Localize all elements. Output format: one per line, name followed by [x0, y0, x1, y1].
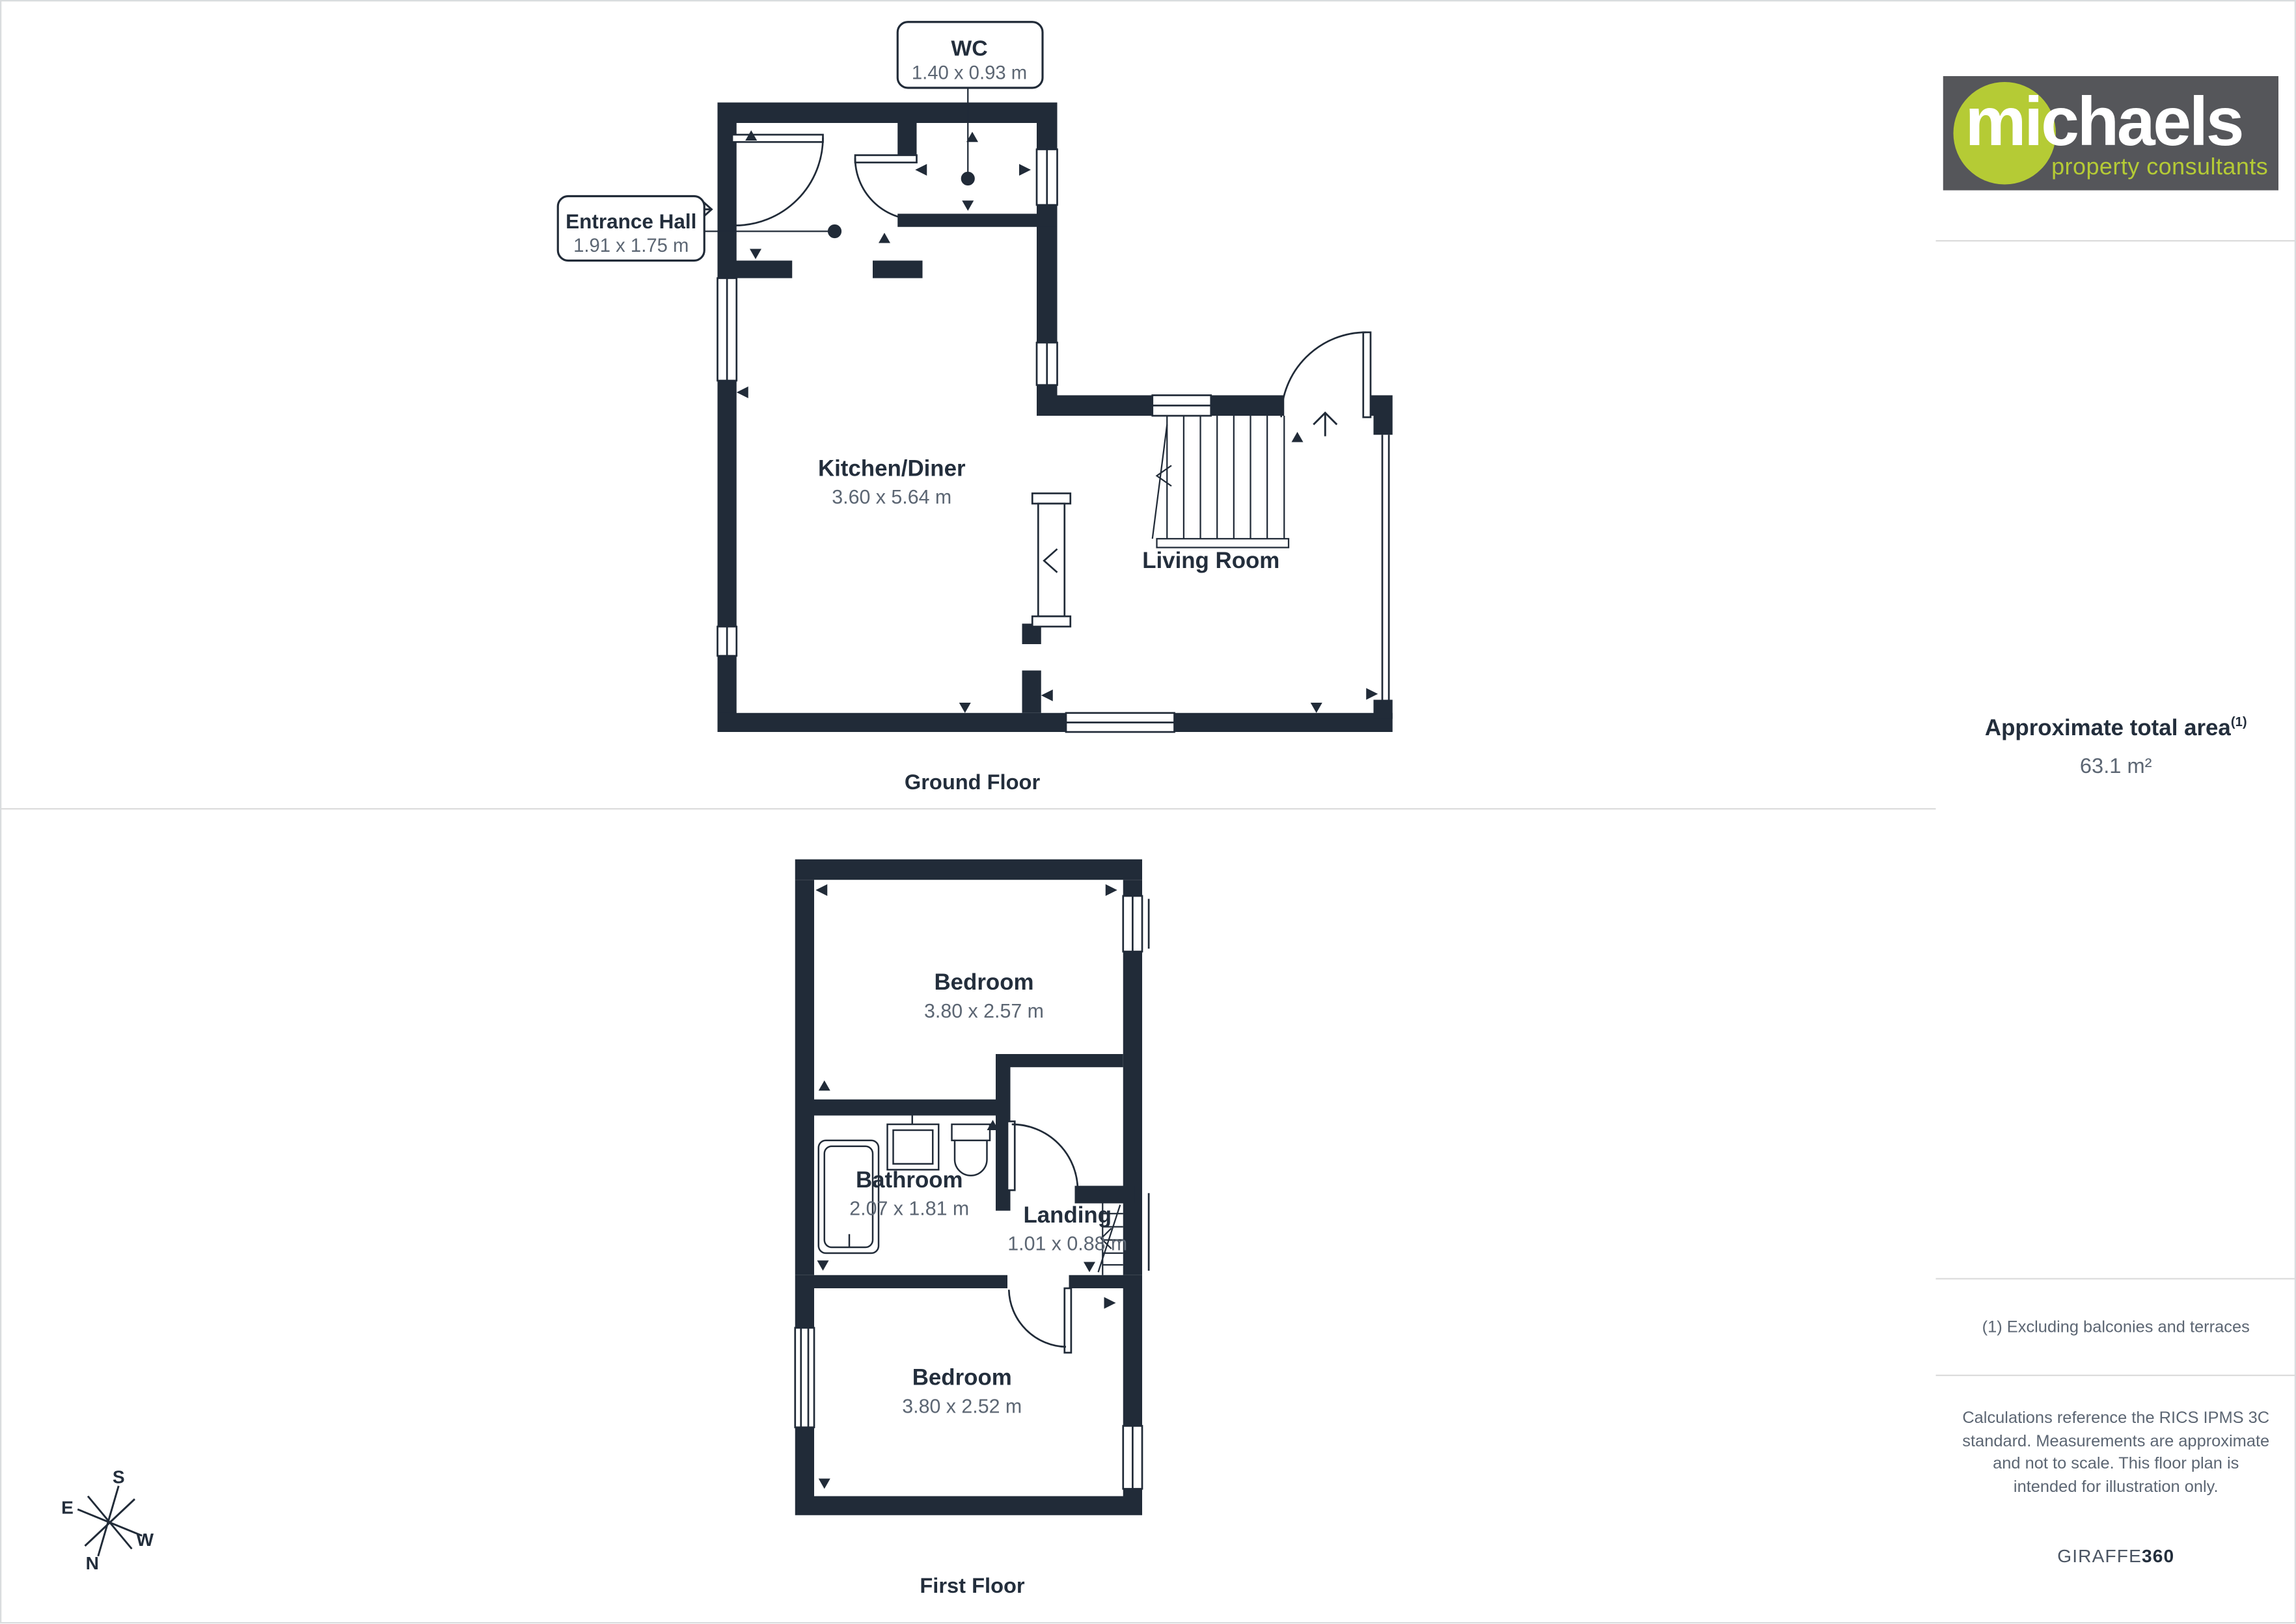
wc-room-name: WC — [951, 36, 987, 61]
disclaimer-text: Calculations reference the RICS IPMS 3C … — [1961, 1409, 2271, 1500]
total-area-block: Approximate total area(1) 63.1 m² — [1936, 714, 2296, 779]
compass-icon: S E W N — [61, 1467, 154, 1573]
total-area-value: 63.1 m² — [1936, 755, 2296, 779]
ground-floor-stairs — [1153, 416, 1289, 548]
ground-floor-plan: WC 1.40 x 0.93 m Entrance Hall 1.91 x 1.… — [558, 22, 1393, 794]
bedroom-front-name: Bedroom — [934, 969, 1033, 995]
sidebar-divider-footnote-top — [1936, 1278, 2296, 1279]
compass-s: S — [113, 1467, 125, 1487]
bathroom-name: Bathroom — [856, 1167, 963, 1193]
kitchen-living-divider — [1032, 493, 1071, 627]
first-floor-title: First Floor — [920, 1573, 1025, 1597]
first-floor-plan: Bedroom 3.80 x 2.57 m Bathroom 2.07 x 1.… — [795, 859, 1149, 1597]
bedroom-back-door — [1009, 1288, 1071, 1353]
logo-tagline: property consultants — [2051, 156, 2268, 182]
compass-n: N — [86, 1553, 99, 1573]
giraffe360-credit: GIRAFFE360 — [1936, 1546, 2296, 1567]
bathtub-icon — [819, 1141, 879, 1253]
agency-logo: michaels property consultants — [1943, 76, 2278, 191]
sidebar: michaels property consultants Approximat… — [1936, 0, 2296, 1623]
total-area-title: Approximate total area(1) — [1936, 714, 2296, 742]
ground-floor-title: Ground Floor — [905, 770, 1041, 794]
logo-brand-text: michaels — [1965, 87, 2243, 156]
living-room-name: Living Room — [1142, 548, 1279, 573]
sidebar-divider-footnote-bottom — [1936, 1375, 2296, 1376]
floor-section-divider — [0, 808, 1936, 809]
kitchen-diner-dims: 3.60 x 5.64 m — [832, 487, 951, 508]
floorplan-page: WC 1.40 x 0.93 m Entrance Hall 1.91 x 1.… — [0, 0, 2296, 1623]
sidebar-divider-top — [1936, 240, 2296, 241]
bathroom-dims: 2.07 x 1.81 m — [849, 1198, 969, 1220]
wc-label-box: WC 1.40 x 0.93 m — [897, 22, 1043, 88]
compass-w: W — [136, 1530, 154, 1550]
front-door — [732, 135, 823, 226]
wc-door — [855, 156, 917, 220]
bedroom-back-name: Bedroom — [912, 1365, 1012, 1390]
sink-icon — [888, 1116, 939, 1170]
total-area-superscript: (1) — [2231, 714, 2247, 729]
kitchen-diner-name: Kitchen/Diner — [818, 455, 966, 481]
giraffe360-brand: GIRAFFE — [2057, 1546, 2142, 1567]
back-door — [1281, 332, 1371, 418]
compass-e: E — [61, 1498, 74, 1518]
landing-dims: 1.01 x 0.88 m — [1007, 1234, 1127, 1255]
entrance-hall-label-box: Entrance Hall 1.91 x 1.75 m — [558, 196, 704, 261]
wc-room-dims: 1.40 x 0.93 m — [912, 63, 1027, 84]
total-area-title-text: Approximate total area — [1985, 716, 2231, 741]
floorplan-canvas: WC 1.40 x 0.93 m Entrance Hall 1.91 x 1.… — [0, 0, 1936, 1623]
bedroom-front-dims: 3.80 x 2.57 m — [924, 1001, 1044, 1022]
area-footnote: (1) Excluding balconies and terraces — [1952, 1319, 2280, 1336]
stairs-up-arrow-icon — [1313, 413, 1337, 437]
entrance-hall-name: Entrance Hall — [566, 210, 696, 233]
bedroom-back-dims: 3.80 x 2.52 m — [902, 1396, 1022, 1417]
entrance-hall-dims: 1.91 x 1.75 m — [573, 236, 689, 256]
giraffe360-suffix: 360 — [2142, 1546, 2174, 1567]
landing-name: Landing — [1023, 1202, 1112, 1228]
bathroom-door — [1007, 1122, 1078, 1191]
